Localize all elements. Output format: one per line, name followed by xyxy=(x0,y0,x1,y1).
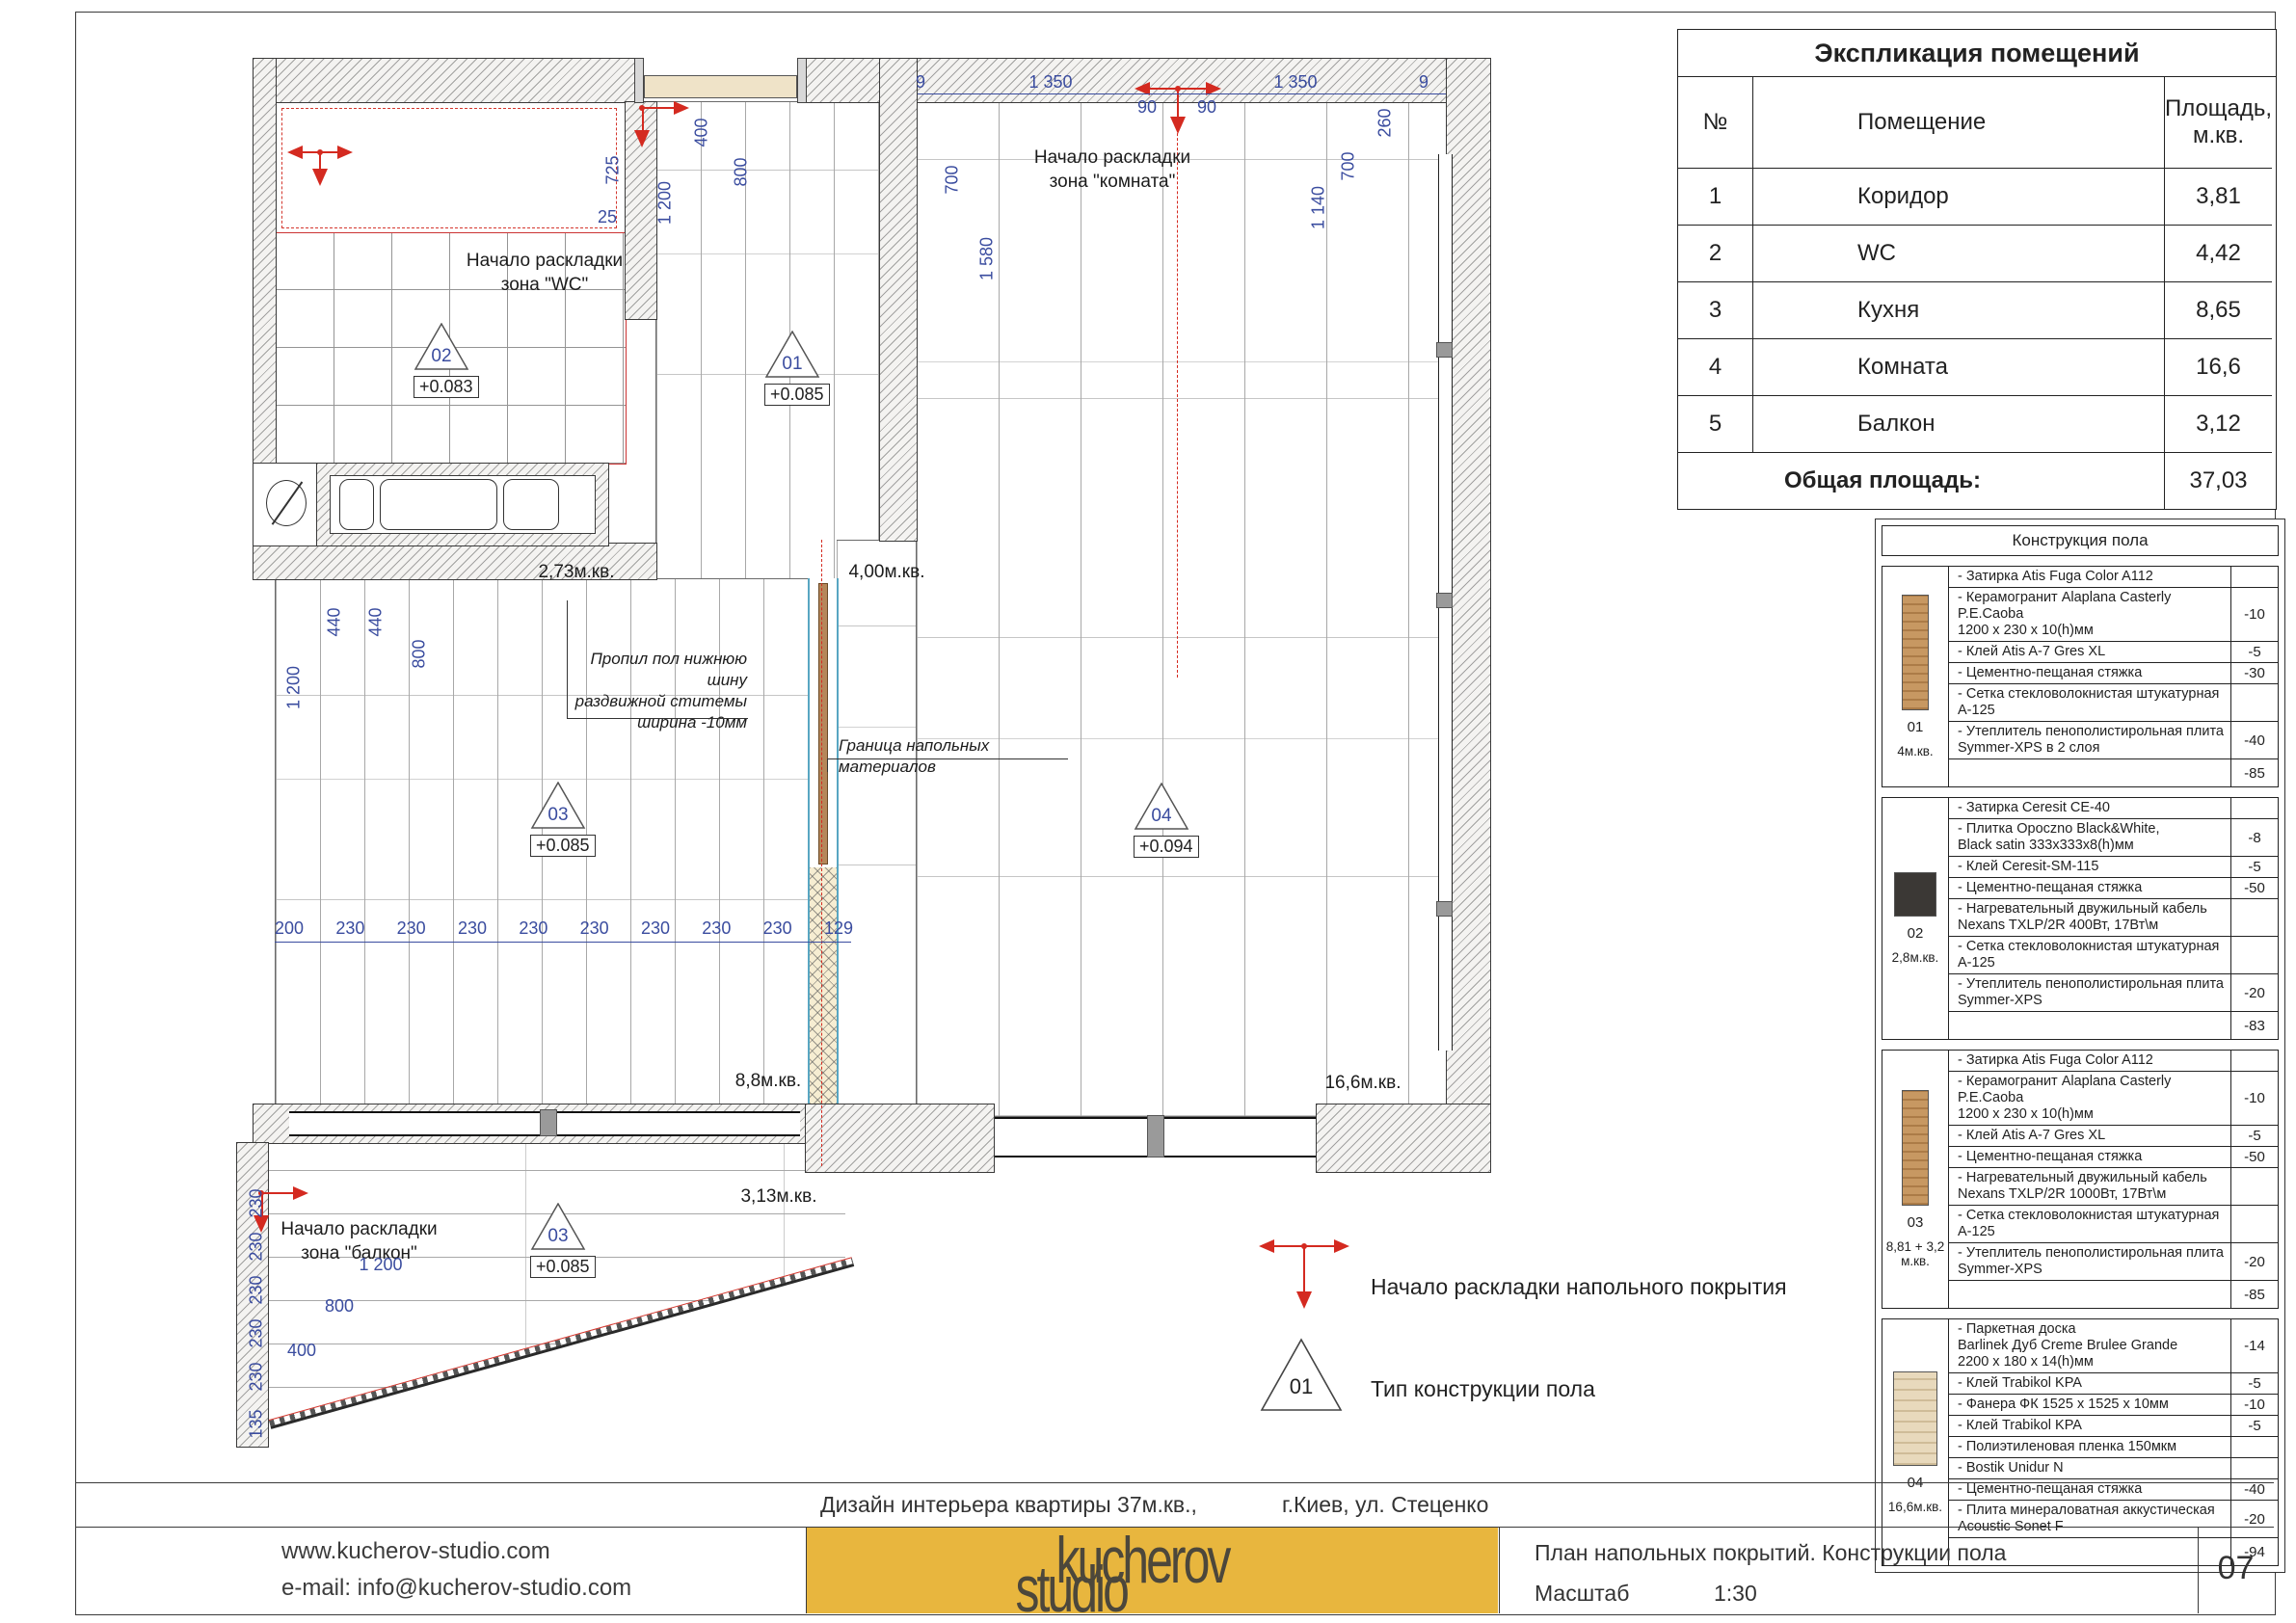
layer-name xyxy=(1949,1012,2230,1039)
section-id: 02 xyxy=(1908,925,1924,942)
layer-thickness: -40 xyxy=(2230,722,2278,758)
studio-email[interactable]: e-mail: info@kucherov-studio.com xyxy=(281,1575,631,1602)
dim-label: 230 xyxy=(519,918,547,939)
layer-name: - Утеплитель пенополистирольная плита Sy… xyxy=(1949,974,2230,1011)
material-swatch xyxy=(1893,1371,1937,1466)
room-name: WC xyxy=(1753,226,2165,282)
drawing-sheet: 02 +0.083 01 +0.085 03 +0.085 04 +0.094 … xyxy=(0,0,2296,1623)
layer-row: - Затирка Ceresit CE-40 xyxy=(1949,798,2278,818)
dim-label: 230 xyxy=(458,918,487,939)
layer-name: - Клей Trabikol KPA xyxy=(1949,1373,2230,1394)
dim-line xyxy=(918,93,1446,94)
floor-type-marker-kitchen: 03 +0.085 xyxy=(530,782,586,857)
window-mullion xyxy=(1436,901,1453,917)
column-header-no: № xyxy=(1678,77,1753,169)
layer-thickness xyxy=(2230,899,2278,936)
layer-thickness: -83 xyxy=(2230,1012,2278,1039)
logo-text-bottom: studio xyxy=(1016,1551,1127,1623)
dim-label: 1 200 xyxy=(337,1255,424,1275)
layer-thickness: -50 xyxy=(2230,878,2278,898)
layer-thickness xyxy=(2230,684,2278,721)
layer-name: - Сетка стекловолокнистая штукатурная А-… xyxy=(1949,1206,2230,1242)
layer-thickness xyxy=(2230,1458,2278,1478)
room-area: 3,81 xyxy=(2165,169,2272,226)
layer-thickness xyxy=(2230,1051,2278,1071)
layer-row: - Bostik Unidur N xyxy=(1949,1457,2278,1478)
marker-number: 04 xyxy=(1134,806,1189,827)
elevation-label: +0.085 xyxy=(530,835,596,857)
layer-thickness: -20 xyxy=(2230,974,2278,1011)
section-info: 038,81 + 3,2 м.кв. xyxy=(1882,1051,1948,1308)
row-number: 5 xyxy=(1678,396,1753,453)
legend-type-number: 01 xyxy=(1259,1374,1344,1399)
legend-type-label: Тип конструкции пола xyxy=(1371,1376,1595,1402)
studio-logo: kucherov studio xyxy=(989,1536,1317,1606)
layer-row: - Утеплитель пенополистирольная плита Sy… xyxy=(1949,721,2278,758)
legend-start-label: Начало раскладки напольного покрытия xyxy=(1371,1274,1787,1300)
titleblock-divider xyxy=(75,1482,2274,1483)
dim-label: 230 xyxy=(247,1226,267,1268)
dim-label: 1 350 xyxy=(1012,72,1089,93)
sheet-number: 07 xyxy=(2198,1550,2274,1587)
legend-start-symbol xyxy=(1259,1236,1349,1309)
dim-label: 230 xyxy=(580,918,609,939)
layer-row: - Керамогранит Alaplana Casterly P.E.Cao… xyxy=(1949,1071,2278,1125)
total-value: 37,03 xyxy=(2165,453,2272,509)
layer-name: - Затирка Atis Fuga Color A112 xyxy=(1949,1051,2230,1071)
layer-thickness: -5 xyxy=(2230,1373,2278,1394)
dim-label: 1 200 xyxy=(284,654,305,722)
layer-name xyxy=(1949,1281,2230,1308)
floor-construction-panel: Конструкция пола 014м.кв.- Затирка Atis … xyxy=(1875,519,2285,1573)
room-area: 4,42 xyxy=(2165,226,2272,282)
dim-label: 1 140 xyxy=(1309,174,1329,242)
layer-thickness: -5 xyxy=(2230,1416,2278,1436)
dim-label: 200 xyxy=(275,918,304,939)
wall-right xyxy=(1446,58,1491,1173)
material-swatch xyxy=(1902,595,1929,710)
layer-row: - Цементно-пещаная стяжка-50 xyxy=(1949,877,2278,898)
marker-number: 01 xyxy=(764,354,820,375)
layer-name: - Утеплитель пенополистирольная плита Sy… xyxy=(1949,1243,2230,1280)
section-id: 01 xyxy=(1908,719,1924,735)
window-mullion xyxy=(1436,593,1453,608)
dim-label: 230 xyxy=(247,1269,267,1312)
explication-total-row: Общая площадь: 37,03 xyxy=(1678,453,2276,509)
explication-header: № Помещение Площадь, м.кв. xyxy=(1678,77,2276,169)
partition-door-leaf xyxy=(818,583,828,865)
layer-row: - Сетка стекловолокнистая штукатурная А-… xyxy=(1949,936,2278,973)
explication-rows: 1Коридор3,812WC4,423Кухня8,654Комната16,… xyxy=(1678,169,2276,453)
layer-name: - Полиэтиленовая пленка 150мкм xyxy=(1949,1437,2230,1457)
layer-name: - Сетка стекловолокнистая штукатурная А-… xyxy=(1949,684,2230,721)
scale-label: Масштаб xyxy=(1535,1581,1629,1607)
layer-row: - Плита минераловатная аккустическая Aco… xyxy=(1949,1500,2278,1537)
dim-label: 230 xyxy=(247,1356,267,1398)
layer-thickness: -85 xyxy=(2230,1281,2278,1308)
layer-name: - Клей Atis A-7 Gres XL xyxy=(1949,1126,2230,1146)
layer-thickness: -5 xyxy=(2230,1126,2278,1146)
layout-start-marker-wc xyxy=(287,142,353,186)
layer-thickness xyxy=(2230,1168,2278,1205)
note-boundary-leader xyxy=(827,758,1068,759)
entrance-door-leaf xyxy=(644,75,797,98)
layer-name: - Клей Ceresit-SM-115 xyxy=(1949,857,2230,877)
area-label-balcony: 3,13м.кв. xyxy=(721,1186,837,1208)
room-name: Коридор xyxy=(1753,169,2165,226)
entrance-door-jamb-right xyxy=(797,58,807,103)
layer-row: -85 xyxy=(1949,1280,2278,1308)
explication-title: Экспликация помещений xyxy=(1678,30,2276,77)
layer-row: - Полиэтиленовая пленка 150мкм xyxy=(1949,1436,2278,1457)
material-swatch xyxy=(1894,872,1936,917)
dim-label: 90 xyxy=(1128,97,1166,118)
section-id: 03 xyxy=(1908,1214,1924,1231)
layer-thickness: -10 xyxy=(2230,588,2278,641)
section-area: 8,81 + 3,2 м.кв. xyxy=(1886,1239,1944,1268)
section-info: 0416,6м.кв. xyxy=(1882,1319,1948,1565)
construction-sections: 014м.кв.- Затирка Atis Fuga Color A112- … xyxy=(1882,566,2279,1566)
layer-thickness xyxy=(2230,567,2278,587)
floor-type-marker-wc: 02 +0.083 xyxy=(414,323,469,398)
dim-label: 440 xyxy=(325,594,345,652)
room-floor-extension xyxy=(837,540,917,1105)
construction-section: 0416,6м.кв.- Паркетная доска Barlinek Ду… xyxy=(1882,1318,2279,1566)
section-area: 4м.кв. xyxy=(1897,744,1933,758)
row-number: 4 xyxy=(1678,339,1753,396)
layer-name: - Плитка Opoczno Black&White, Black sati… xyxy=(1949,819,2230,856)
area-label-corridor: 4,00м.кв. xyxy=(837,562,937,583)
layer-thickness: -20 xyxy=(2230,1501,2278,1537)
window-mullion xyxy=(1147,1115,1164,1157)
project-title: Дизайн интерьера квартиры 37м.кв., xyxy=(820,1492,1197,1518)
studio-website[interactable]: www.kucherov-studio.com xyxy=(281,1538,550,1565)
layer-name: - Паркетная доска Barlinek Дуб Creme Bru… xyxy=(1949,1319,2230,1372)
section-area: 16,6м.кв. xyxy=(1888,1500,1942,1514)
layer-row: - Утеплитель пенополистирольная плита Sy… xyxy=(1949,1242,2278,1280)
material-boundary-line xyxy=(821,540,822,1166)
layer-row: - Затирка Atis Fuga Color A112 xyxy=(1949,567,2278,587)
layer-thickness: -30 xyxy=(2230,663,2278,683)
dim-label: 230 xyxy=(763,918,792,939)
dim-label: 800 xyxy=(410,625,430,683)
layer-name: - Нагревательный двужильный кабель Nexan… xyxy=(1949,899,2230,936)
layer-name: - Утеплитель пенополистирольная плита Sy… xyxy=(1949,722,2230,758)
layer-row: - Сетка стекловолокнистая штукатурная А-… xyxy=(1949,683,2278,721)
zone-label-wc: Начало раскладки зона "WC" xyxy=(439,249,651,297)
layer-thickness: -85 xyxy=(2230,759,2278,786)
note-cut: Пропил пол нижнюю шину раздвижной ститем… xyxy=(569,649,747,733)
table-row: 4Комната16,6 xyxy=(1678,339,2276,396)
room-name: Комната xyxy=(1753,339,2165,396)
layer-row: - Нагревательный двужильный кабель Nexan… xyxy=(1949,898,2278,936)
layer-row: - Утеплитель пенополистирольная плита Sy… xyxy=(1949,973,2278,1011)
layer-row: - Нагревательный двужильный кабель Nexan… xyxy=(1949,1167,2278,1205)
wall-bottom-center xyxy=(805,1104,995,1173)
bathtub-detail xyxy=(380,479,497,530)
wall-top-left xyxy=(255,58,638,103)
table-row: 1Коридор3,81 xyxy=(1678,169,2276,226)
layer-row: - Затирка Atis Fuga Color A112 xyxy=(1949,1051,2278,1071)
material-swatch xyxy=(1902,1090,1929,1206)
scale-value: 1:30 xyxy=(1714,1581,1757,1607)
elevation-label: +0.094 xyxy=(1134,836,1199,858)
construction-section: 038,81 + 3,2 м.кв.- Затирка Atis Fuga Co… xyxy=(1882,1050,2279,1309)
dim-label: 440 xyxy=(366,594,387,652)
dim-label: 1 350 xyxy=(1257,72,1334,93)
layer-row: - Паркетная доска Barlinek Дуб Creme Bru… xyxy=(1949,1319,2278,1372)
dim-label: 9 xyxy=(906,72,935,93)
entrance-door-jamb-left xyxy=(634,58,644,103)
table-row: 5Балкон3,12 xyxy=(1678,396,2276,453)
layers-table: - Затирка Atis Fuga Color A112- Керамогр… xyxy=(1948,567,2278,786)
dim-label: 129 xyxy=(824,918,853,939)
dim-label: 800 xyxy=(301,1296,378,1317)
layer-thickness xyxy=(2230,937,2278,973)
bathtub-detail xyxy=(339,479,374,530)
layer-thickness: -8 xyxy=(2230,819,2278,856)
layers-table: - Затирка Atis Fuga Color A112- Керамогр… xyxy=(1948,1051,2278,1308)
bathtub-detail xyxy=(503,479,559,530)
dim-label: 25 xyxy=(588,207,627,227)
layer-name: - Керамогранит Alaplana Casterly P.E.Cao… xyxy=(1949,588,2230,641)
marker-number: 02 xyxy=(414,346,469,367)
dim-label: 90 xyxy=(1188,97,1226,118)
layer-thickness: -10 xyxy=(2230,1072,2278,1125)
row-number: 2 xyxy=(1678,226,1753,282)
row-number: 3 xyxy=(1678,282,1753,339)
area-label-wc: 2,73м.кв. xyxy=(522,562,630,583)
row-number: 1 xyxy=(1678,169,1753,226)
wall-bottom-right xyxy=(1316,1104,1491,1173)
layer-name: - Bostik Unidur N xyxy=(1949,1458,2230,1478)
legend-type-symbol: 01 xyxy=(1259,1338,1344,1418)
dim-label: 9 xyxy=(1409,72,1438,93)
layer-row: -83 xyxy=(1949,1011,2278,1039)
layer-thickness: -10 xyxy=(2230,1395,2278,1415)
room-area: 3,12 xyxy=(2165,396,2272,453)
column-header-room: Помещение xyxy=(1753,77,2165,169)
construction-section: 022,8м.кв.- Затирка Ceresit CE-40- Плитк… xyxy=(1882,797,2279,1040)
dim-label: 700 xyxy=(943,151,963,209)
note-cut-leader xyxy=(567,600,568,719)
floor-type-marker-balcony: 03 +0.085 xyxy=(530,1203,586,1278)
titleblock-divider xyxy=(1499,1527,1500,1613)
dim-label: 230 xyxy=(247,1313,267,1355)
section-area: 2,8м.кв. xyxy=(1892,950,1939,965)
construction-section: 014м.кв.- Затирка Atis Fuga Color A112- … xyxy=(1882,566,2279,787)
layer-thickness xyxy=(2230,798,2278,818)
dim-label: 230 xyxy=(335,918,364,939)
layer-name xyxy=(1949,759,2230,786)
sheet-title: План напольных покрытий. Конструкции пол… xyxy=(1535,1540,2006,1566)
layer-name: - Затирка Ceresit CE-40 xyxy=(1949,798,2230,818)
dim-line xyxy=(275,942,851,943)
dim-label: 230 xyxy=(397,918,426,939)
layer-thickness xyxy=(2230,1206,2278,1242)
layer-name: - Фанера ФК 1525 x 1525 x 10мм xyxy=(1949,1395,2230,1415)
room-area: 16,6 xyxy=(2165,339,2272,396)
layer-thickness: -5 xyxy=(2230,857,2278,877)
room-area: 8,65 xyxy=(2165,282,2272,339)
dim-label: 1 200 xyxy=(655,170,676,237)
dim-label: 230 xyxy=(641,918,670,939)
dim-label: 700 xyxy=(1339,138,1359,196)
dim-row-bottom: 200 230 230 230 230 230 230 230 230 129 xyxy=(275,918,853,939)
layer-row: - Цементно-пещаная стяжка-30 xyxy=(1949,662,2278,683)
elevation-label: +0.085 xyxy=(530,1256,596,1278)
construction-title: Конструкция пола xyxy=(1882,525,2279,556)
layer-name: - Клей Trabikol KPA xyxy=(1949,1416,2230,1436)
dim-label: 400 xyxy=(263,1341,340,1361)
layer-thickness: -5 xyxy=(2230,642,2278,662)
layer-row: - Плитка Opoczno Black&White, Black sati… xyxy=(1949,818,2278,856)
layer-thickness: -20 xyxy=(2230,1243,2278,1280)
layers-table: - Паркетная доска Barlinek Дуб Creme Bru… xyxy=(1948,1319,2278,1565)
layer-row: - Сетка стекловолокнистая штукатурная А-… xyxy=(1949,1205,2278,1242)
layer-row: - Клей Ceresit-SM-115-5 xyxy=(1949,856,2278,877)
dim-label: 230 xyxy=(702,918,731,939)
layer-name: - Цементно-пещаная стяжка xyxy=(1949,878,2230,898)
layer-name: - Сетка стекловолокнистая штукатурная А-… xyxy=(1949,937,2230,973)
elevation-label: +0.085 xyxy=(764,384,830,406)
layers-table: - Затирка Ceresit CE-40- Плитка Opoczno … xyxy=(1948,798,2278,1039)
drain-symbol xyxy=(266,480,307,526)
explication-table: Экспликация помещений № Помещение Площад… xyxy=(1677,29,2277,510)
area-label-room: 16,6м.кв. xyxy=(1303,1073,1423,1094)
layer-name: - Цементно-пещаная стяжка xyxy=(1949,663,2230,683)
marker-number: 03 xyxy=(530,1226,586,1247)
layer-name: - Затирка Atis Fuga Color A112 xyxy=(1949,567,2230,587)
layer-row: - Керамогранит Alaplana Casterly P.E.Cao… xyxy=(1949,587,2278,641)
layer-row: - Клей Atis A-7 Gres XL-5 xyxy=(1949,641,2278,662)
layer-name: - Плита минераловатная аккустическая Aco… xyxy=(1949,1501,2230,1537)
dim-label: 1 580 xyxy=(977,226,998,293)
layer-row: - Фанера ФК 1525 x 1525 x 10мм-10 xyxy=(1949,1394,2278,1415)
floor-type-marker-corridor: 01 +0.085 xyxy=(764,331,820,406)
project-address: г.Киев, ул. Стеценко xyxy=(1282,1492,1488,1518)
layer-row: - Цементно-пещаная стяжка-50 xyxy=(1949,1146,2278,1167)
note-cut-leader xyxy=(567,718,748,719)
total-label: Общая площадь: xyxy=(1678,453,2165,509)
window-mullion xyxy=(540,1109,557,1136)
dim-label: 800 xyxy=(732,144,752,201)
layer-thickness: -14 xyxy=(2230,1319,2278,1372)
elevation-label: +0.083 xyxy=(414,376,479,398)
marker-number: 03 xyxy=(530,805,586,826)
layer-name: - Керамогранит Alaplana Casterly P.E.Cao… xyxy=(1949,1072,2230,1125)
layer-row: - Клей Trabikol KPA-5 xyxy=(1949,1372,2278,1394)
layer-row: - Клей Trabikol KPA-5 xyxy=(1949,1415,2278,1436)
window-mullion xyxy=(1436,342,1453,358)
section-info: 022,8м.кв. xyxy=(1882,798,1948,1039)
partition-insulated xyxy=(808,867,839,1104)
area-label-kitchen: 8,8м.кв. xyxy=(715,1071,821,1092)
column-header-area: Площадь, м.кв. xyxy=(2165,77,2272,169)
layer-row: - Клей Atis A-7 Gres XL-5 xyxy=(1949,1125,2278,1146)
room-name: Балкон xyxy=(1753,396,2165,453)
dim-label: 260 xyxy=(1375,94,1396,152)
floor-type-marker-room: 04 +0.094 xyxy=(1134,783,1189,858)
dim-label: 400 xyxy=(692,104,712,162)
layer-name: - Цементно-пещаная стяжка xyxy=(1949,1147,2230,1167)
layer-row: -85 xyxy=(1949,758,2278,786)
wall-corridor-room xyxy=(879,58,918,542)
dim-label: 135 xyxy=(247,1403,267,1446)
table-row: 2WC4,42 xyxy=(1678,226,2276,282)
section-info: 014м.кв. xyxy=(1882,567,1948,786)
layer-thickness: -50 xyxy=(2230,1147,2278,1167)
room-name: Кухня xyxy=(1753,282,2165,339)
note-boundary-leader xyxy=(827,758,828,772)
layer-thickness xyxy=(2230,1437,2278,1457)
table-row: 3Кухня8,65 xyxy=(1678,282,2276,339)
studio-logo-block: kucherov studio xyxy=(807,1528,1498,1613)
note-boundary: Граница напольных материалов xyxy=(839,735,1070,778)
dim-label: 230 xyxy=(247,1183,267,1225)
layer-name: - Клей Atis A-7 Gres XL xyxy=(1949,642,2230,662)
layer-name: - Нагревательный двужильный кабель Nexan… xyxy=(1949,1168,2230,1205)
dim-label: 725 xyxy=(603,142,624,200)
zone-label-room: Начало раскладки зона "комната" xyxy=(1010,146,1215,194)
